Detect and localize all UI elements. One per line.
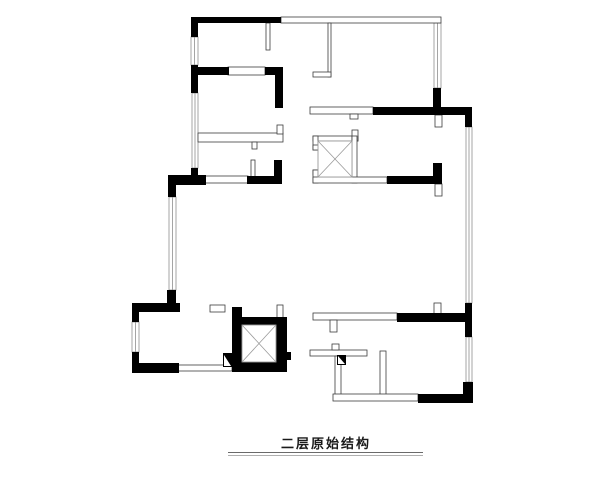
partition-wall: [228, 67, 265, 75]
structural-wall: [232, 362, 287, 372]
partition-wall: [313, 136, 358, 141]
structural-wall: [191, 17, 281, 23]
partition-wall: [313, 177, 387, 183]
plan-title: 二层原始结构: [54, 433, 598, 452]
structural-wall: [387, 176, 440, 184]
partition-wall: [277, 305, 283, 318]
partition-wall: [313, 313, 397, 320]
structural-wall: [465, 303, 472, 337]
partition-wall: [252, 142, 257, 149]
partition-wall: [380, 351, 386, 395]
structural-wall: [433, 163, 442, 184]
structural-wall: [275, 67, 283, 108]
floor-plan-drawing: [0, 0, 600, 480]
partition-wall: [310, 107, 373, 114]
partition-wall: [333, 394, 418, 401]
structural-wall: [397, 313, 467, 322]
structural-wall: [433, 88, 441, 108]
partition-wall: [266, 23, 270, 50]
partition-wall: [328, 23, 331, 77]
partition-wall: [251, 160, 255, 177]
structural-wall: [465, 107, 472, 127]
partition-wall: [198, 133, 283, 142]
structural-wall: [373, 107, 472, 115]
structural-wall: [168, 175, 176, 197]
partition-wall: [435, 115, 442, 127]
partition-wall: [332, 344, 339, 350]
partition-wall: [434, 303, 441, 314]
partition-wall: [205, 176, 248, 183]
structural-wall: [418, 394, 472, 403]
partition-wall: [352, 136, 357, 183]
structural-wall: [283, 352, 291, 360]
partition-wall: [350, 114, 358, 119]
partition-wall: [435, 184, 442, 196]
partition-wall: [330, 320, 337, 332]
partition-wall: [210, 305, 225, 312]
structural-wall: [274, 160, 282, 184]
title-underline-top: [228, 452, 423, 453]
partition-wall: [281, 17, 441, 23]
title-underline-bottom: [228, 455, 423, 456]
partition-wall: [313, 72, 331, 77]
structural-wall: [191, 17, 198, 37]
structural-wall: [191, 67, 229, 75]
floor-plan-page: 二层原始结构: [0, 0, 600, 480]
partition-wall: [277, 125, 283, 134]
structural-wall: [132, 303, 139, 322]
structural-wall: [132, 303, 180, 312]
structural-wall: [132, 363, 179, 373]
